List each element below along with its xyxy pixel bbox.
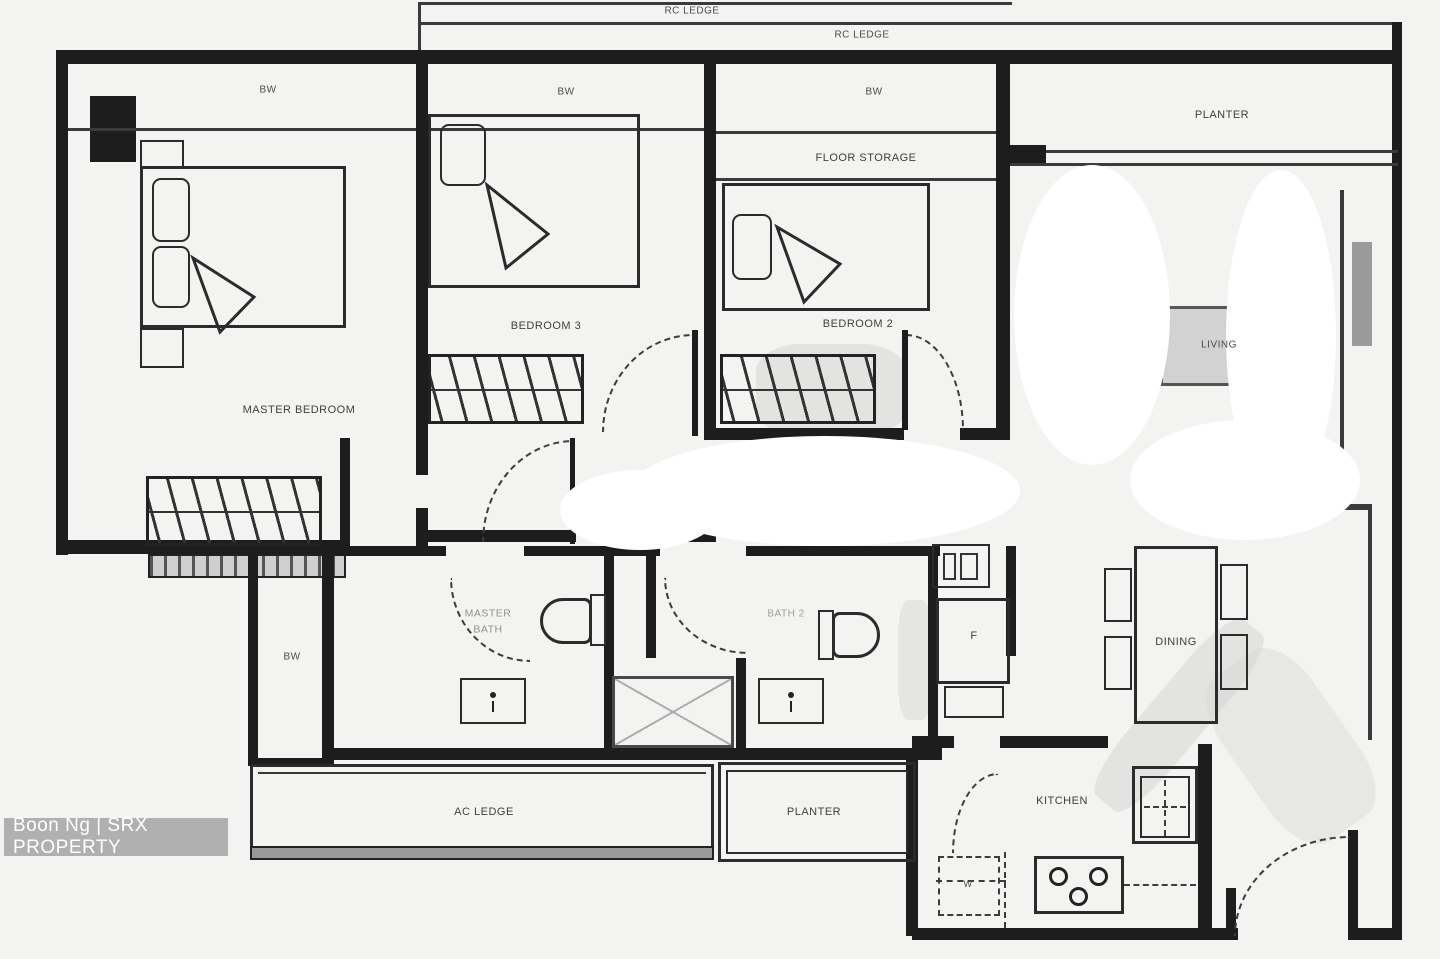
kitchen-top-wall <box>912 736 954 748</box>
planter-top-line1 <box>1010 150 1398 153</box>
wall-bed2-living <box>996 50 1010 440</box>
watermark-credit: Boon Ng | SRX PROPERTY <box>4 818 228 856</box>
bedroom2-wardrobe <box>720 354 876 424</box>
tap-icon <box>790 701 792 712</box>
wall-bed3-bed2 <box>704 50 716 435</box>
tap-icon <box>788 692 794 698</box>
toilet-tank <box>590 594 606 646</box>
bedroom3-door-arc <box>602 334 694 432</box>
shower-wall <box>736 658 746 754</box>
bedroom2-door-leaf <box>902 330 908 430</box>
bath-bottom-wall <box>330 748 942 760</box>
bed-fold <box>190 255 260 335</box>
bay-window-line-master <box>68 128 416 131</box>
ac-ledge-band <box>250 846 714 860</box>
kitchen-label: KITCHEN <box>1036 795 1088 807</box>
dining-chair <box>1220 634 1248 690</box>
watermark-smudge <box>898 600 932 720</box>
bedroom2-label: BEDROOM 2 <box>823 318 894 330</box>
planter-bottom-label: PLANTER <box>787 806 841 818</box>
hall-wall <box>340 438 350 548</box>
bedroom2-door-arc <box>906 334 964 430</box>
pillow <box>732 214 772 280</box>
bay-window-label: BW <box>557 87 574 98</box>
tap-icon <box>492 701 494 712</box>
kitchen-door-arc <box>952 773 998 853</box>
bedroom3-label: BEDROOM 3 <box>511 320 582 332</box>
pillow <box>152 246 190 308</box>
bedroom3-wardrobe <box>428 354 584 424</box>
burner-icon <box>1089 867 1108 886</box>
ac-ledge-inner-line <box>258 772 706 774</box>
top-wall <box>56 50 1400 64</box>
toilet-bowl <box>832 612 880 658</box>
entrance-door-arc <box>1234 836 1350 936</box>
bay-window-label: BW <box>865 87 882 98</box>
planter-top-line2 <box>1010 163 1398 166</box>
bedroom3-door-leaf <box>692 330 698 436</box>
bed-fold <box>484 182 554 272</box>
rc-ledge-mid-line <box>418 22 1398 25</box>
dining-chair <box>1220 564 1248 620</box>
shower-tray <box>612 676 734 748</box>
bath-top-wall <box>746 546 940 556</box>
dining-label: DINING <box>1155 636 1197 648</box>
kitchen-right-wall <box>1198 744 1212 940</box>
pillow <box>440 124 486 186</box>
kitchen-sink <box>932 544 990 588</box>
dining-chair <box>1104 636 1132 690</box>
bath-top-wall <box>330 546 446 556</box>
counter-dash <box>1004 852 1006 928</box>
nightstand <box>140 328 184 368</box>
kitchen-top-wall <box>1000 736 1108 748</box>
floor-storage-label: FLOOR STORAGE <box>815 152 916 164</box>
bw-strip-left-wall <box>248 554 258 766</box>
wall-master-bed3-stub <box>416 508 428 548</box>
dining-table <box>1134 546 1218 724</box>
bay-window-label: BW <box>259 85 276 96</box>
bath2-door-arc <box>664 578 748 654</box>
ac-ledge-label: AC LEDGE <box>454 806 514 818</box>
bottom-wall <box>912 928 1238 940</box>
vanity-sink <box>460 678 526 724</box>
bw-strip-right-wall <box>322 546 334 760</box>
left-wall <box>56 50 68 555</box>
stove <box>1034 856 1124 914</box>
cabinet <box>944 686 1004 718</box>
planter-top-jog <box>1008 145 1046 163</box>
bay-window-side-label: BW <box>283 652 300 663</box>
bath2-label: BATH 2 <box>767 609 804 620</box>
rc-ledge-side <box>418 2 421 52</box>
floorplan-canvas: RC LEDGE RC LEDGE BW BW BW PLANTER FLOOR… <box>0 0 1440 959</box>
living-label: LIVING <box>1201 340 1237 351</box>
nightstand <box>140 140 184 168</box>
master-bedroom-label: MASTER BEDROOM <box>243 404 356 416</box>
balcony-line <box>1368 508 1372 740</box>
bed-fold <box>774 224 846 306</box>
planter-top-label: PLANTER <box>1195 109 1249 121</box>
burner-icon <box>1069 887 1088 906</box>
toilet-bowl <box>540 598 592 644</box>
master-wardrobe <box>146 476 322 546</box>
burner-icon <box>1049 867 1068 886</box>
washer-label: W <box>964 879 973 889</box>
bay-window-line-bed2 <box>716 131 996 134</box>
erased-area <box>560 470 720 550</box>
floor-storage-line <box>716 178 996 181</box>
pillow <box>152 178 190 242</box>
fridge-label: F <box>970 630 977 642</box>
sink-basin <box>960 553 978 580</box>
window-mullion <box>1352 242 1372 346</box>
rc-ledge-label: RC LEDGE <box>664 6 719 17</box>
counter-dash <box>1124 884 1196 886</box>
vanity-sink <box>758 678 824 724</box>
wall-master-bed3 <box>416 50 428 475</box>
sink-basin <box>943 553 956 580</box>
master-bedroom-door-arc <box>482 440 574 542</box>
erased-area <box>1014 165 1170 465</box>
master-wardrobe-band <box>148 554 346 578</box>
counter-dash <box>1164 780 1166 836</box>
right-wall <box>1392 22 1402 940</box>
rc-ledge-label: RC LEDGE <box>834 30 889 41</box>
bath-mid-wall <box>646 546 656 658</box>
bed2-bottom-wall <box>960 428 1010 440</box>
erased-area <box>1130 420 1360 540</box>
master-bath-label: MASTER BATH <box>456 606 520 638</box>
tap-icon <box>490 692 496 698</box>
dining-chair <box>1104 568 1132 622</box>
